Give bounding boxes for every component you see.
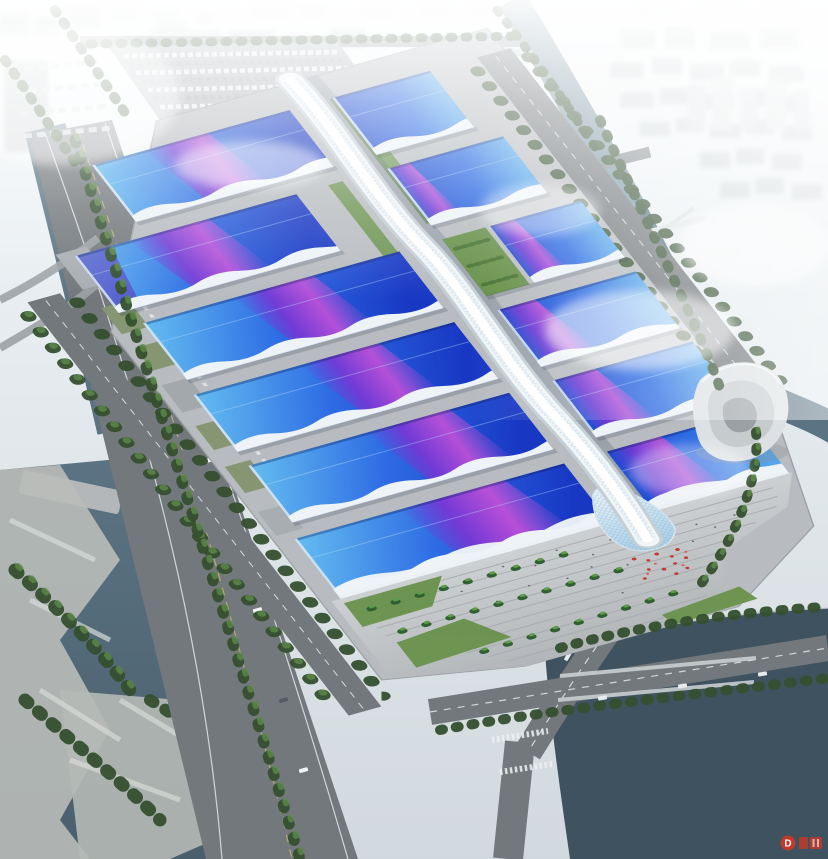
- aerial-rendering: Aerial rendering of a large exhibition c…: [0, 0, 828, 859]
- watermark-glyph-slit: [817, 839, 819, 847]
- scene-root: Aerial rendering of a large exhibition c…: [0, 0, 828, 859]
- watermark-glyph-slit: [813, 839, 815, 847]
- watermark-letter: D: [784, 839, 791, 850]
- watermark-glyph: [799, 837, 808, 849]
- watermark-glyph: [810, 837, 822, 849]
- south-stub-road: [508, 742, 520, 859]
- watermark-logo: D: [781, 836, 823, 851]
